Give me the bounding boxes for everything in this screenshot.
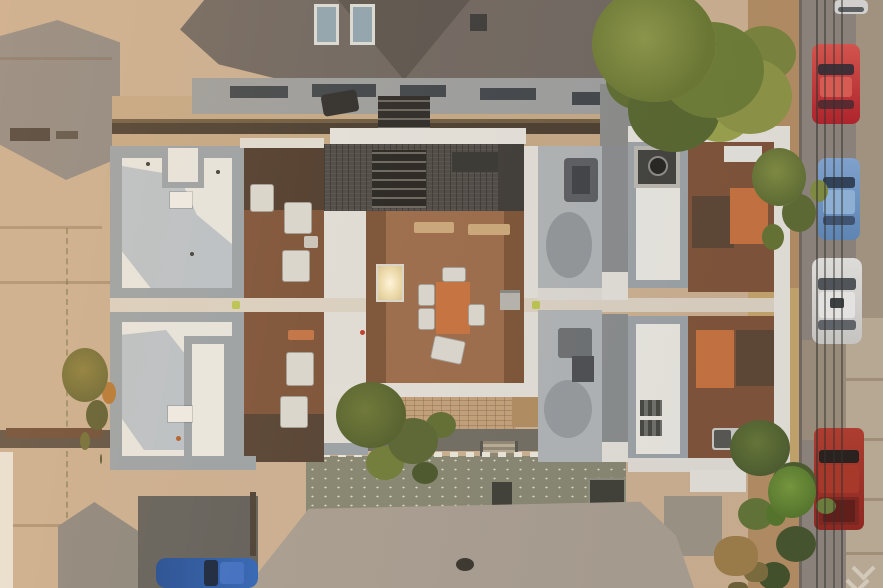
dining-chair [418,308,435,330]
skylight-glowing [376,264,404,302]
red-marker [360,330,365,335]
orange-bush [62,348,108,402]
left-wing-top-parapet [240,138,324,148]
rooftop-ac-unit [170,192,192,208]
core-staircase [372,150,426,208]
stair-core-top-parapet [330,128,526,144]
power-line [824,0,826,588]
louver-wall-lower [602,314,628,442]
exhaust-fan [648,156,668,176]
cube-seat [500,290,520,310]
sidewalk-joint [0,57,112,60]
white-curb [0,452,13,588]
left-wing-bottom-parapet [110,456,256,470]
eave-window [480,88,536,100]
deck-chair [250,184,274,212]
garage-vent [492,482,512,506]
street-tree [752,148,806,206]
rooftop-ac-unit [168,406,192,422]
green-bush [768,466,816,518]
dining-table [436,282,470,334]
rooftop-equipment-dark [572,356,594,382]
deck-bench [414,222,454,233]
walkway-marker [532,301,540,309]
sidewalk-joint [0,226,102,229]
roof-stain [544,380,592,438]
deck-lounge-chair [284,202,312,234]
roof-drain [146,162,150,166]
bbq-grill-lid [714,430,731,448]
power-line [816,0,818,588]
storm-drain [10,128,50,141]
dining-chair [442,267,466,282]
walkway-marker [232,301,240,309]
roof-stain [546,212,592,278]
deck-lounge-chair [286,352,314,386]
roof-debris-spot [456,558,474,571]
power-line [833,0,835,588]
roof-vent [470,14,487,31]
bottom-house-roof [246,498,694,588]
parapet-band [602,272,628,300]
rust-stain [176,436,181,441]
sidewalk-joint [846,552,883,555]
cinder-blocks [640,400,662,416]
left-street-asphalt [0,20,120,180]
car-roof [823,190,855,214]
car-windshield [823,177,855,188]
backyard-tree [336,382,406,448]
deck-shadow [736,330,778,386]
rooftop-equipment-dark [572,166,590,194]
navy-car-partial [156,558,258,588]
sidewalk-joint [0,281,110,284]
dark-red-truck [814,428,864,530]
skylight [350,4,375,45]
storm-drain [56,131,78,139]
car-rear-window [823,216,855,225]
red-car [812,44,860,124]
truck-bed-interior [823,500,855,522]
unit-lower-right-roof [628,316,688,462]
core-planter [452,152,502,172]
right-wing-top-parapet [628,126,790,142]
deck-table-lower-right [696,330,734,388]
stair-bulkhead-roof [192,344,224,458]
parapet-band [538,288,602,300]
power-line [841,0,843,588]
skylight [314,4,339,45]
utility-pole [250,492,256,556]
louver-wall-upper [602,146,628,272]
deck-lounge-chair [280,396,308,428]
aerial-photo-scene [0,0,883,588]
parapet-band [602,442,628,462]
white-car [812,258,862,344]
deck-lounge-chair [282,250,310,282]
eave-window [230,86,288,98]
core-louver-wall [498,144,524,214]
rear-roof-corner [690,470,746,492]
car-windshield [204,560,218,586]
dining-chair [468,304,485,326]
car-roof [220,562,244,584]
deck-shadow [692,196,734,248]
roof-drain [216,170,220,174]
white-car-top-partial [834,0,868,14]
deck-bench [288,330,314,340]
rooftop-equipment [558,328,592,358]
cinder-blocks [640,420,662,436]
roof-drain [190,252,194,256]
dry-plants [714,536,758,576]
dining-chair [418,284,435,306]
stair-bulkhead-roof [168,148,198,182]
sidewalk-joint [846,378,883,381]
gutter-board [6,428,102,438]
deck-side-table [304,236,318,248]
deck-bench [468,224,510,235]
